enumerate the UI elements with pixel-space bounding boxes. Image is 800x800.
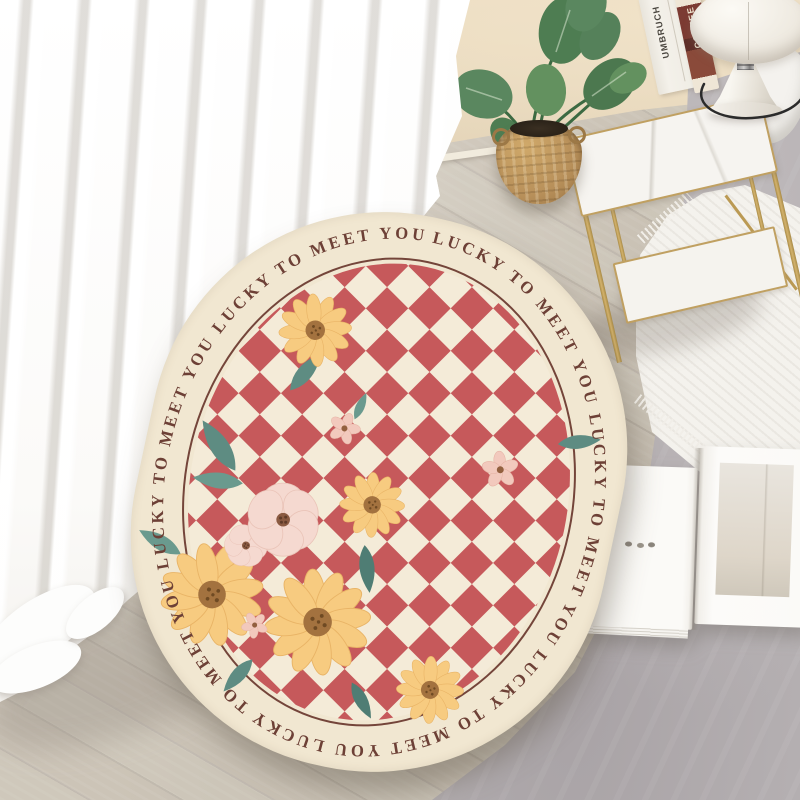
basket-opening: [510, 120, 568, 137]
bedroom-scene: UMBRUCH COFFEE: [0, 0, 800, 800]
page-photo: [715, 463, 794, 598]
lamp-shade-seam: [748, 2, 749, 60]
rug-border-text: LUCKY TO MEET YOU LUCKY TO MEET YOU LUCK…: [99, 180, 660, 800]
lamp-cord: [690, 78, 800, 130]
svg-text:LUCKY TO MEET YOU LUCKY TO MEE: LUCKY TO MEET YOU LUCKY TO MEET YOU LUCK…: [99, 180, 660, 800]
book-right-page: [694, 446, 800, 628]
page-photo: [614, 483, 679, 585]
